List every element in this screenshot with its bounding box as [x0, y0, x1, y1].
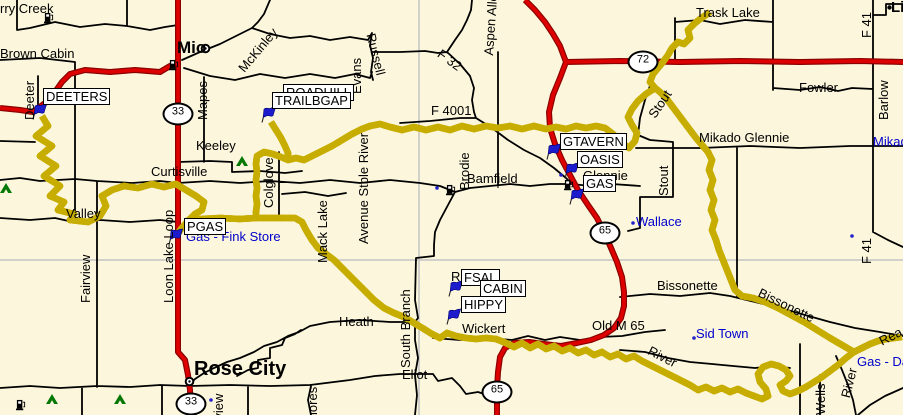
label-li-partial: Li	[891, 0, 903, 15]
label-bamfield: Bamfield	[467, 172, 518, 185]
label-keeley: Keeley	[196, 139, 236, 152]
waypoint-box-oasis[interactable]: OASIS	[577, 151, 623, 168]
waypoint-box-gtavern[interactable]: GTAVERN	[560, 133, 627, 150]
label-fowler: Fowler	[799, 81, 838, 94]
waypoint-box-gas[interactable]: GAS	[583, 175, 616, 192]
dot-blue-icon	[850, 234, 854, 238]
label-rry-creek: rry Creek	[0, 2, 53, 15]
waypoint-box-deeters[interactable]: DEETERS	[43, 88, 110, 105]
tent-icon	[236, 156, 248, 166]
waypoint-flag-icon[interactable]	[447, 309, 461, 325]
waypoint-flag-icon[interactable]	[262, 107, 276, 123]
label-loon-lake-loop: Loon Lake Loop	[162, 210, 175, 303]
label-mikado-edge: Mikado	[873, 135, 903, 148]
label-brown-cabin: Brown Cabin	[0, 47, 74, 60]
label-f41-south: F 41	[860, 238, 873, 264]
label-shores: Shores	[306, 387, 319, 415]
waypoint-box-pgas[interactable]: PGAS	[184, 218, 226, 235]
label-south-branch: South Branch	[399, 289, 412, 368]
dot-blue-icon	[631, 221, 635, 225]
tent-icon	[114, 394, 126, 404]
map-canvas[interactable]: rry CreekBrown CabinMioMcKinleyRussellEv…	[0, 0, 903, 415]
label-heath: Heath	[339, 315, 374, 328]
label-wells: Wells	[814, 383, 827, 415]
label-fairview: Fairview	[79, 255, 92, 303]
label-mack-lake: Mack Lake	[316, 200, 329, 263]
tent-icon	[0, 183, 12, 193]
dot-blue-icon	[435, 186, 439, 190]
label-bissonette: Bissonette	[657, 279, 718, 292]
label-rose-city: Rose City	[194, 359, 286, 379]
label-gas-dan: Gas - Dan	[857, 355, 903, 368]
label-curtisville: Curtisville	[151, 165, 207, 178]
label-eliot: Eliot	[402, 368, 427, 381]
label-mio: Mio	[177, 39, 206, 56]
tent-icon	[46, 394, 58, 404]
waypoint-box-trailbgap[interactable]: TRAILBGAP	[272, 92, 351, 109]
pump-icon	[16, 400, 25, 410]
shield-m33-north: 33	[163, 103, 194, 126]
label-sid-town: Sid Town	[696, 327, 749, 340]
label-mapes: Mapes	[196, 81, 209, 120]
town-icon	[186, 378, 194, 386]
waypoint-box-hippy[interactable]: HIPPY	[461, 296, 506, 313]
shield-m72: 72	[628, 51, 659, 74]
shield-m33-south: 33	[176, 393, 207, 415]
label-r-partial: R	[451, 270, 460, 283]
label-barlow: Barlow	[877, 80, 890, 120]
label-ausable-river: Avenue Stble River	[357, 133, 370, 244]
label-stout-lower: Stout	[657, 166, 670, 196]
label-valley: Valley	[66, 207, 100, 220]
waypoint-flag-icon[interactable]	[570, 189, 584, 205]
shield-m65-south: 65	[482, 381, 513, 404]
label-old-m-65: Old M 65	[592, 319, 645, 332]
label-wickert: Wickert	[462, 322, 505, 335]
label-trask-lake: Trask Lake	[696, 6, 760, 19]
label-fairview-south: Fairview	[212, 394, 225, 415]
label-f41-north: F 41	[860, 12, 873, 38]
label-deeter: Deeter	[23, 81, 36, 120]
label-mikado-glennie: Mikado Glennie	[699, 131, 789, 144]
label-colglove: Colglove	[262, 157, 275, 208]
waypoint-box-cabin[interactable]: CABIN	[480, 280, 526, 297]
dot-blue-icon	[559, 173, 563, 177]
shield-m65-north: 65	[590, 222, 621, 245]
label-f4001: F 4001	[431, 104, 471, 117]
label-wallace: Wallace	[636, 215, 682, 228]
